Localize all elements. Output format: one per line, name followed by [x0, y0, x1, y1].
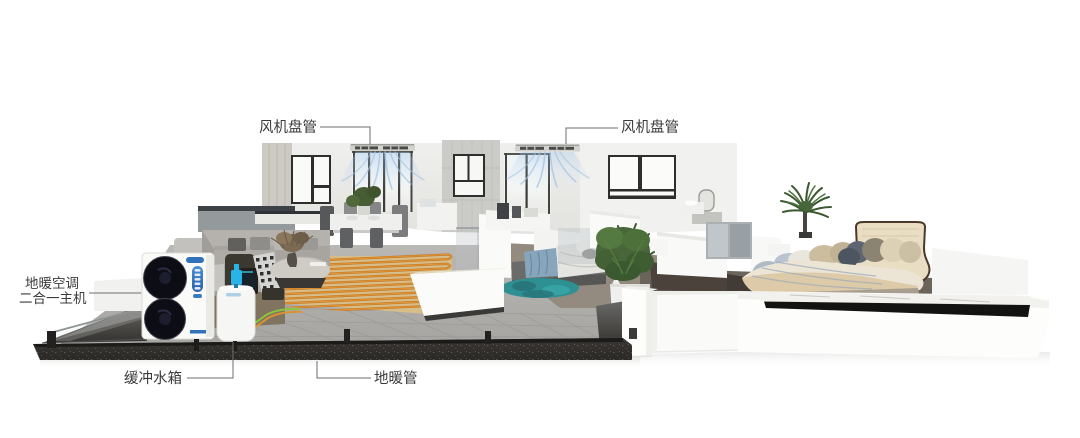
- svg-text:风机盘管: 风机盘管: [259, 118, 317, 136]
- svg-text:风机盘管: 风机盘管: [621, 118, 679, 136]
- svg-text:地暖管: 地暖管: [374, 370, 418, 387]
- svg-text:二合一主机: 二合一主机: [19, 291, 87, 306]
- svg-text:地暖空调: 地暖空调: [25, 276, 79, 291]
- svg-text:缓冲水箱: 缓冲水箱: [124, 370, 182, 387]
